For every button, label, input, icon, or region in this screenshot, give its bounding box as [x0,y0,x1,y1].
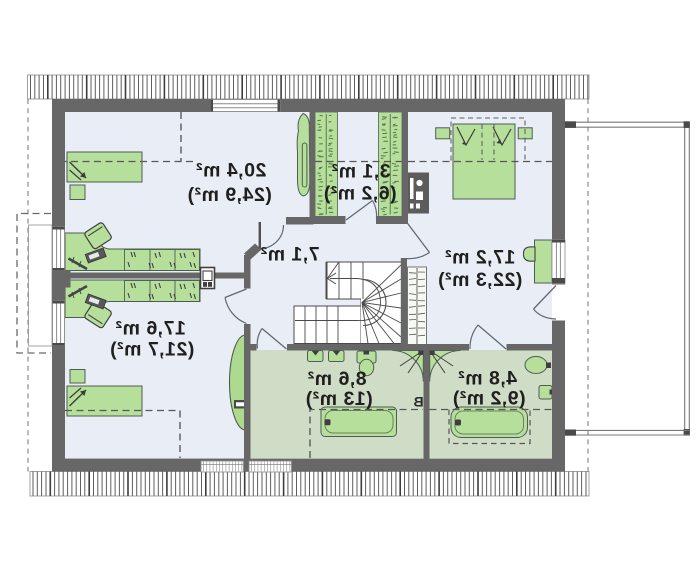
svg-text:(9,2 m²): (9,2 m²) [452,388,525,410]
svg-text:8,6 m²: 8,6 m² [307,368,366,390]
svg-text:17,2 m²: 17,2 m² [445,247,516,269]
svg-text:(21,7 m²): (21,7 m²) [110,339,195,361]
svg-text:7,1 m²: 7,1 m² [260,244,319,266]
svg-text:(24,9 m²): (24,9 m²) [187,184,272,206]
svg-text:(13 m²): (13 m²) [305,388,372,410]
svg-text:3,1 m²: 3,1 m² [331,161,390,183]
svg-text:4,8 m²: 4,8 m² [458,368,517,390]
svg-text:(22,3 m²): (22,3 m²) [438,269,523,291]
svg-text:17,6 m²: 17,6 m² [115,318,186,340]
svg-text:20,4 m²: 20,4 m² [196,160,267,182]
svg-text:B: B [413,394,423,410]
svg-text:(6,2 m²): (6,2 m²) [323,183,396,205]
